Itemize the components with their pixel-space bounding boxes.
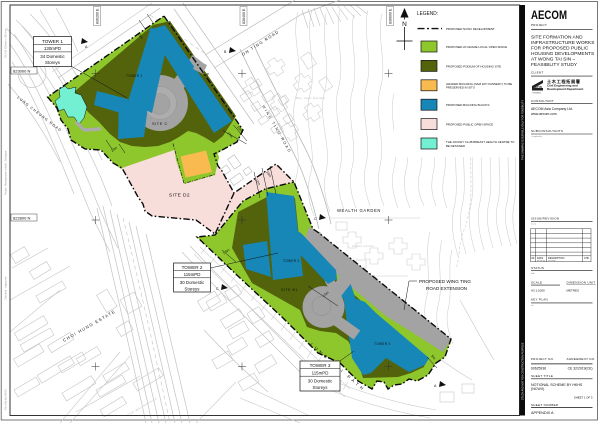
- svg-text:Checked : Approved: Checked : Approved: [4, 276, 8, 300]
- svg-text:34 Domestic: 34 Domestic: [40, 54, 65, 59]
- svg-text:Storeys: Storeys: [313, 385, 329, 390]
- svg-text:as shown: as shown: [548, 260, 556, 262]
- svg-text:dd.mm.yy: dd.mm.yy: [537, 260, 545, 262]
- svg-text:PROPOSED WING TING: PROPOSED WING TING: [419, 279, 471, 284]
- svg-text:Development Department: Development Department: [547, 87, 583, 91]
- svg-text:AECOM: AECOM: [531, 8, 567, 22]
- svg-text:C: C: [314, 217, 317, 221]
- svg-text:A3 1:1000: A3 1:1000: [531, 289, 545, 293]
- svg-text:30 Domestic: 30 Domestic: [308, 379, 333, 384]
- svg-text:CONSULTANT: CONSULTANT: [531, 99, 554, 103]
- svg-text:AECOM Asia Company Ltd.: AECOM Asia Company Ltd.: [531, 107, 573, 111]
- svg-text:Plot File by HKHS: Plot File by HKHS: [4, 389, 8, 410]
- svg-text:draft: draft: [531, 272, 535, 275]
- svg-text:FOR PROPOSED PUBLIC: FOR PROPOSED PUBLIC: [531, 45, 589, 51]
- svg-text:(NCWV): (NCWV): [531, 387, 544, 391]
- svg-text:N: N: [402, 21, 407, 28]
- svg-text:HKSARG: HKSARG: [533, 92, 542, 95]
- svg-text:n/a: n/a: [531, 305, 534, 307]
- svg-text:Project Management Initials :: Project Management Initials : Designer: [4, 150, 8, 195]
- svg-text:AGREEMENT NO.: AGREEMENT NO.: [567, 357, 596, 361]
- svg-text:TOWER 3: TOWER 3: [310, 363, 331, 368]
- svg-text:ISO A3 420mm x 297mm: ISO A3 420mm x 297mm: [4, 29, 8, 58]
- svg-text:Storeys: Storeys: [185, 286, 201, 291]
- svg-text:836400 E: 836400 E: [242, 8, 246, 24]
- svg-text:SITE B1: SITE B1: [281, 288, 298, 292]
- svg-text:Storeys: Storeys: [45, 60, 61, 65]
- svg-text:836200 E: 836200 E: [96, 8, 100, 24]
- svg-text:THIS DRAWING IS SUITABLE ONLY: THIS DRAWING IS SUITABLE ONLY FOR FEASIB…: [521, 100, 524, 160]
- svg-text:SUBCONSULTANTS: SUBCONSULTANTS: [531, 129, 563, 133]
- svg-text:rev no: rev no: [531, 223, 536, 225]
- svg-text:PROPOSED AT-GRADE LOCAL OPEN S: PROPOSED AT-GRADE LOCAL OPEN SPACE: [446, 45, 507, 49]
- svg-text:SHEET 1 OF 3: SHEET 1 OF 3: [574, 396, 593, 400]
- svg-text:ISSUE/REVISION: ISSUE/REVISION: [531, 217, 559, 221]
- svg-text:836600 E: 836600 E: [389, 8, 393, 24]
- svg-text:PROPOSED NCWV DEVELOPMENT: PROPOSED NCWV DEVELOPMENT: [446, 27, 495, 31]
- svg-text:SITE D2: SITE D2: [169, 193, 190, 199]
- svg-text:SITE C: SITE C: [152, 122, 168, 126]
- svg-text:HOUSING DEVELOPMENTS: HOUSING DEVELOPMENTS: [531, 51, 594, 57]
- svg-text:WEALTH GARDEN: WEALTH GARDEN: [337, 208, 381, 213]
- svg-text:130mPD: 130mPD: [44, 46, 61, 51]
- svg-text:PROJECT NO.: PROJECT NO.: [531, 357, 554, 361]
- svg-text:PROJECT: PROJECT: [531, 23, 547, 27]
- svg-text:C: C: [216, 287, 219, 291]
- svg-text:CLIENT: CLIENT: [531, 71, 543, 75]
- svg-text:- if applicable -: - if applicable -: [531, 136, 543, 138]
- svg-text:CE 32/2019(CE): CE 32/2019(CE): [568, 366, 593, 370]
- svg-text:FEASIBILITY STUDY: FEASIBILITY STUDY: [531, 62, 578, 68]
- svg-text:Wealth Garden: Wealth Garden: [352, 244, 375, 248]
- svg-text:STATUS: STATUS: [531, 266, 544, 270]
- svg-text:METRES: METRES: [567, 289, 580, 293]
- svg-text:INFRASTRUCTURE WORKS: INFRASTRUCTURE WORKS: [531, 40, 594, 46]
- svg-text:30 Domestic: 30 Domestic: [180, 280, 205, 285]
- svg-text:SHEET TITLE: SHEET TITLE: [531, 374, 553, 378]
- svg-text:PROPOSED BUILDING BLOCKS: PROPOSED BUILDING BLOCKS: [446, 103, 489, 107]
- svg-text:PROPOSED PUBLIC OPEN SPACE: PROPOSED PUBLIC OPEN SPACE: [446, 123, 493, 127]
- svg-text:APPENDIX A: APPENDIX A: [531, 411, 554, 415]
- svg-text:SITE FORMATION AND: SITE FORMATION AND: [531, 34, 583, 40]
- svg-text:60625936: 60625936: [531, 366, 546, 370]
- svg-text:115mPD: 115mPD: [184, 272, 201, 277]
- svg-text:LEGEND:: LEGEND:: [417, 11, 438, 17]
- svg-text:Bay View Garden: Bay View Garden: [296, 96, 325, 100]
- svg-text:PRESERVED IN SITU: PRESERVED IN SITU: [446, 86, 475, 90]
- svg-text:822800 N: 822800 N: [13, 215, 30, 220]
- svg-text:KEY PLAN: KEY PLAN: [531, 298, 548, 302]
- svg-text:STUDY AND NOT FOR CONSTRUCTION: STUDY AND NOT FOR CONSTRUCTION PURPOSE: [521, 342, 524, 400]
- svg-text:SHEET NUMBER: SHEET NUMBER: [531, 403, 559, 407]
- svg-text:AT WONG TAI SIN –: AT WONG TAI SIN –: [531, 56, 575, 62]
- svg-text:TOWER 1: TOWER 1: [126, 74, 143, 78]
- svg-text:823000 N: 823000 N: [13, 68, 30, 73]
- svg-text:BE RETAINED: BE RETAINED: [446, 144, 465, 148]
- svg-text:www.aecom.com: www.aecom.com: [531, 112, 557, 116]
- svg-text:TOWER 1: TOWER 1: [42, 39, 63, 44]
- svg-text:115mPD: 115mPD: [312, 370, 329, 375]
- svg-text:DIMENSION UNIT: DIMENSION UNIT: [567, 281, 596, 285]
- svg-text:PROPOSED PODIUM OF HOUSING SIT: PROPOSED PODIUM OF HOUSING SITE: [446, 64, 501, 68]
- svg-text:CEDD: CEDD: [533, 86, 543, 90]
- svg-text:TOWER 2: TOWER 2: [182, 265, 203, 270]
- svg-text:CHK: CHK: [584, 257, 589, 260]
- svg-text:I/R: I/R: [531, 257, 534, 260]
- svg-text:TOWER 3: TOWER 3: [374, 342, 391, 346]
- svg-text:NOTIONAL SCHEME BY HKHS: NOTIONAL SCHEME BY HKHS: [531, 383, 583, 387]
- svg-text:ROAD EXTENSION: ROAD EXTENSION: [426, 286, 467, 291]
- svg-text:SCALE: SCALE: [531, 281, 542, 285]
- svg-text:TOWER 2: TOWER 2: [283, 259, 300, 263]
